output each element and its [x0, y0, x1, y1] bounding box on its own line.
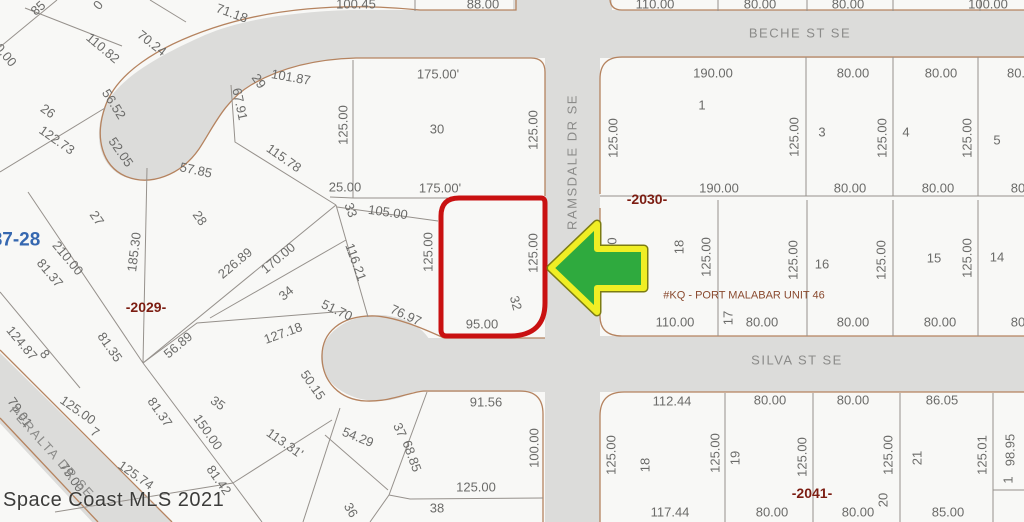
map-label: 125.00 [607, 118, 620, 158]
map-label: 80.00 [756, 506, 789, 519]
map-label: 70.24 [135, 28, 169, 58]
map-label: 21 [911, 451, 924, 465]
map-label: 125.00 [876, 118, 889, 158]
map-label: 125.00 [456, 481, 496, 494]
map-label: 1 [1002, 476, 1015, 483]
map-label: 5 [993, 134, 1000, 147]
map-label: 37 [391, 421, 409, 440]
map-label: 175.00' [419, 182, 461, 195]
map-label: -2041- [792, 486, 832, 500]
map-label: 33 [342, 201, 359, 219]
map-label: 18 [673, 240, 686, 254]
map-label: 30 [430, 123, 444, 136]
map-label: 85.00 [932, 506, 965, 519]
map-label: 4 [902, 126, 909, 139]
map-label: 124.87 [4, 324, 40, 363]
map-label: 125.74 [116, 458, 156, 491]
map-label: 170.00 [259, 240, 298, 276]
map-label: 80 [1011, 316, 1024, 329]
map-labels: 850.000110.8270.2471.18100.4588.00110.00… [0, 0, 1024, 522]
map-label: 15 [927, 252, 941, 265]
street-label: SILVA ST SE [751, 354, 843, 367]
map-label: 125.00 [882, 435, 895, 475]
map-label: 150.00 [191, 412, 224, 452]
map-label: 38 [430, 502, 444, 515]
map-label: 110.82 [84, 31, 122, 66]
map-label: 100.00 [528, 428, 541, 468]
map-label: 19 [729, 451, 742, 465]
map-label: 80.00 [754, 394, 787, 407]
map-label: 34 [276, 283, 295, 302]
map-label: 98.95 [1004, 434, 1017, 467]
map-label: 110.00 [656, 316, 695, 329]
map-label: -2030- [627, 192, 667, 206]
map-label: 80.00 [924, 316, 957, 329]
map-label: 35 [208, 394, 227, 413]
street-label: BECHE ST SE [749, 27, 851, 40]
map-label: 117.44 [651, 506, 690, 519]
map-label: 32 [508, 294, 524, 311]
map-label: 52.05 [106, 135, 135, 169]
map-label: 80.00 [925, 67, 958, 80]
map-label: 226.89 [216, 245, 255, 281]
map-label: 80.00 [832, 0, 865, 11]
map-label: 190.00 [693, 67, 733, 80]
map-label: 125.00 [422, 232, 435, 272]
map-label: 125.00 [796, 437, 809, 477]
map-label: 68.85 [400, 438, 423, 473]
map-label: 127.18 [262, 320, 304, 346]
map-label: 88.00 [467, 0, 500, 11]
map-label: 122.73 [37, 123, 77, 156]
map-label: 16 [815, 258, 829, 271]
map-label: 54.29 [340, 425, 375, 449]
map-label: 86.05 [926, 394, 959, 407]
map-label: 113.31' [264, 426, 305, 460]
map-label: 17 [722, 311, 735, 325]
map-label: 67.91 [230, 87, 249, 122]
map-label: 125.01 [976, 435, 989, 475]
map-label: 112.44 [653, 395, 692, 408]
map-label: 25.00 [329, 181, 362, 194]
map-label: 80.00 [744, 0, 777, 11]
map-label: 125.00 [788, 117, 801, 157]
map-label: 125.00 [605, 435, 618, 475]
map-label: 0.00 [0, 41, 19, 69]
map-label: 71.18 [214, 1, 249, 24]
map-label: #KQ - PORT MALABAR UNIT 46 [663, 291, 824, 302]
map-label: 8 [38, 347, 53, 361]
map-label: 80.00 [834, 182, 867, 195]
map-label: 27 [88, 208, 107, 227]
map-label: 100.45 [336, 0, 376, 11]
map-label: 185.30 [125, 231, 143, 272]
map-label: 28 [191, 208, 210, 227]
map-label: 80.00 [837, 67, 870, 80]
map-label: 125.00 [58, 393, 98, 426]
map-label: 100.00 [968, 0, 1008, 11]
map-label: 125.00 [961, 118, 974, 158]
map-label: 80. [1007, 67, 1024, 80]
map-label: 125.00 [527, 233, 540, 273]
map-label: 14 [990, 251, 1004, 264]
map-label: 80.00 [837, 394, 870, 407]
map-label: 87-28 [0, 231, 40, 250]
map-label: 80.00 [837, 316, 870, 329]
map-label: 105.00 [367, 203, 408, 221]
map-label: 175.00' [417, 68, 459, 81]
map-label: 116.21 [343, 242, 368, 283]
map-label: 36 [342, 500, 360, 519]
map-label: 85 [28, 0, 47, 18]
map-label: 110.00 [636, 0, 675, 11]
map-label: -2029- [126, 300, 166, 314]
map-label: 80.00 [746, 316, 779, 329]
map-label: 125.00 [787, 240, 800, 280]
map-label: 20 [877, 493, 890, 507]
map-label: 91.56 [470, 396, 503, 409]
map-label: 51.70 [320, 297, 355, 323]
map-label: 3 [818, 126, 825, 139]
map-label: 56.89 [161, 330, 194, 361]
map-label: 50.15 [298, 368, 327, 402]
map-label: 0 [606, 237, 619, 244]
map-label: 80.00 [922, 182, 955, 195]
map-label: 125.00 [700, 237, 713, 277]
map-label: 76.97 [389, 302, 424, 328]
map-label: 18 [639, 458, 652, 472]
map-label: 125.00 [961, 238, 974, 278]
plat-map: 850.000110.8270.2471.18100.4588.00110.00… [0, 0, 1024, 522]
map-label: 1 [698, 99, 705, 112]
map-label: 81.35 [95, 330, 124, 364]
map-label: 190.00 [699, 182, 739, 195]
map-label: 95.00 [466, 318, 499, 331]
map-label: 29 [250, 71, 269, 90]
map-label: 56.52 [100, 87, 128, 121]
map-label: 57.85 [179, 160, 214, 179]
map-label: 80.00 [842, 506, 875, 519]
map-label: 26 [38, 102, 57, 121]
map-label: 125.00 [337, 105, 350, 145]
map-label: 125.00 [875, 240, 888, 280]
mls-watermark: Space Coast MLS 2021 [3, 489, 224, 512]
map-label: 101.87 [270, 67, 311, 87]
map-label: 0 [91, 0, 106, 12]
street-label: RAMSDALE DR SE [566, 94, 579, 230]
map-label: 125.00 [527, 110, 540, 150]
map-label: 81.37 [145, 395, 174, 429]
map-label: 80 [1011, 182, 1024, 195]
map-label: 125.00 [709, 433, 722, 473]
map-label: 115.78 [264, 142, 303, 175]
